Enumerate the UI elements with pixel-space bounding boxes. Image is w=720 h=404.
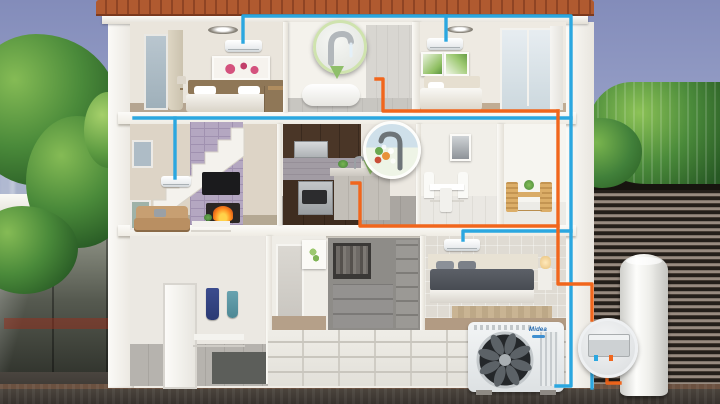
ac-indoor-unit-living <box>161 176 191 187</box>
coffee-table <box>192 221 230 227</box>
window-mullion <box>527 30 529 106</box>
dining-floor <box>421 196 497 225</box>
kitchen-faucet-icon <box>366 124 418 176</box>
inset-hydraulic-module <box>578 318 638 378</box>
wardrobe-shelves <box>396 240 418 328</box>
balcony-chair <box>506 182 518 212</box>
wardrobe-clothes <box>336 246 368 274</box>
bathroom-tile-wall <box>366 25 412 100</box>
hallway-floor <box>272 316 326 330</box>
house-roof <box>96 0 594 16</box>
ac-indoor-unit-bedroom-ur <box>427 38 463 50</box>
hydraulic-module-box <box>588 334 630 357</box>
hallway-art-flowers <box>302 240 326 269</box>
wardrobe-drawers <box>333 284 393 328</box>
sofa-seat <box>134 218 190 230</box>
balcony-plant <box>524 180 534 190</box>
balcony-door-window <box>144 34 168 110</box>
wall-art-leaf-left <box>421 52 444 76</box>
unit-top-vents <box>474 325 532 330</box>
ac-indoor-unit-bedroom-ground <box>444 239 480 251</box>
island-plant <box>338 160 348 168</box>
water-tank-top-highlight <box>626 257 662 265</box>
towel-teal <box>227 291 238 318</box>
balcony-table <box>518 192 542 197</box>
wall-art-pink-flowers <box>212 56 270 80</box>
wall-dining-balcony <box>497 124 504 225</box>
tv-screen <box>202 172 240 195</box>
mudroom-rug <box>212 352 268 384</box>
sheer-curtain <box>550 26 563 110</box>
module-port-cold <box>594 355 598 361</box>
balcony-chair <box>540 182 552 212</box>
unit-side-slats <box>540 332 558 386</box>
table-lamp <box>177 76 186 84</box>
inset-bathroom-pointer <box>330 66 344 79</box>
oven-window <box>302 190 327 204</box>
inset-kitchen-faucet <box>363 121 421 179</box>
fan-grille <box>476 331 534 389</box>
bathtub <box>302 84 360 106</box>
neighbor-glass-reflection-red <box>4 318 108 329</box>
module-port-hot <box>609 355 613 361</box>
ceiling-lamp <box>447 26 473 33</box>
curtain <box>168 30 183 110</box>
bed <box>420 88 482 110</box>
bench <box>194 334 244 340</box>
dining-chair-front <box>440 188 452 212</box>
table-plant <box>204 214 212 221</box>
microwave <box>294 141 328 158</box>
unit-foot <box>540 390 556 395</box>
midea-logo: Midea <box>529 327 557 334</box>
fire-flames <box>213 206 233 221</box>
ceiling-lamp <box>208 26 238 34</box>
wall-bedroomUL-bathroom <box>283 22 288 112</box>
unit-foot <box>476 390 492 395</box>
bath-faucet-icon <box>316 23 364 71</box>
bed-ground-base <box>430 290 534 303</box>
wall-art-leaf-right <box>444 52 469 76</box>
bed-ground-duvet <box>430 269 534 291</box>
nightstand-lamp-glow <box>540 256 551 269</box>
towel-blue <box>206 288 219 320</box>
wall-bathroom-bedroomUR <box>412 22 420 112</box>
wall-art-dining <box>450 134 471 161</box>
nightstand <box>538 268 552 290</box>
sofa-pillow <box>154 209 166 217</box>
midea-sub-badge <box>532 335 545 338</box>
outdoor-heat-pump-unit: Midea <box>468 322 564 392</box>
kitchen-island-base <box>334 176 390 220</box>
house-cutaway-scene: Midea <box>0 0 720 404</box>
ac-indoor-unit-bedroom-ul <box>225 40 262 52</box>
mudroom-door <box>163 283 197 389</box>
